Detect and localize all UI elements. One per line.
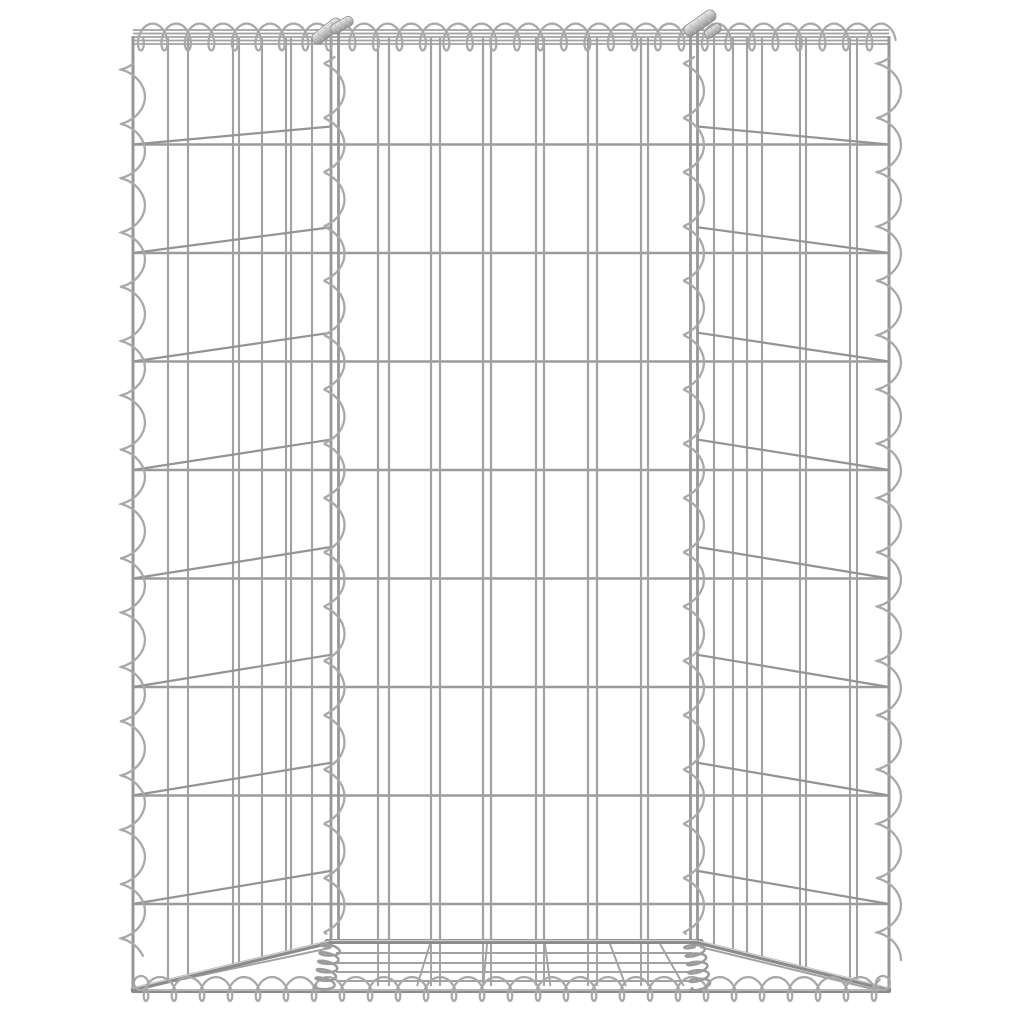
side-panel-diagonals — [133, 126, 889, 904]
mesh-row-wires — [133, 145, 889, 905]
gabion-basket-image — [0, 0, 1024, 1024]
front-panel-verticals — [378, 38, 648, 986]
right-panel-verticals — [714, 38, 857, 982]
product-photo — [0, 0, 1024, 1024]
left-panel-verticals — [168, 38, 312, 982]
corner-posts — [133, 28, 889, 990]
